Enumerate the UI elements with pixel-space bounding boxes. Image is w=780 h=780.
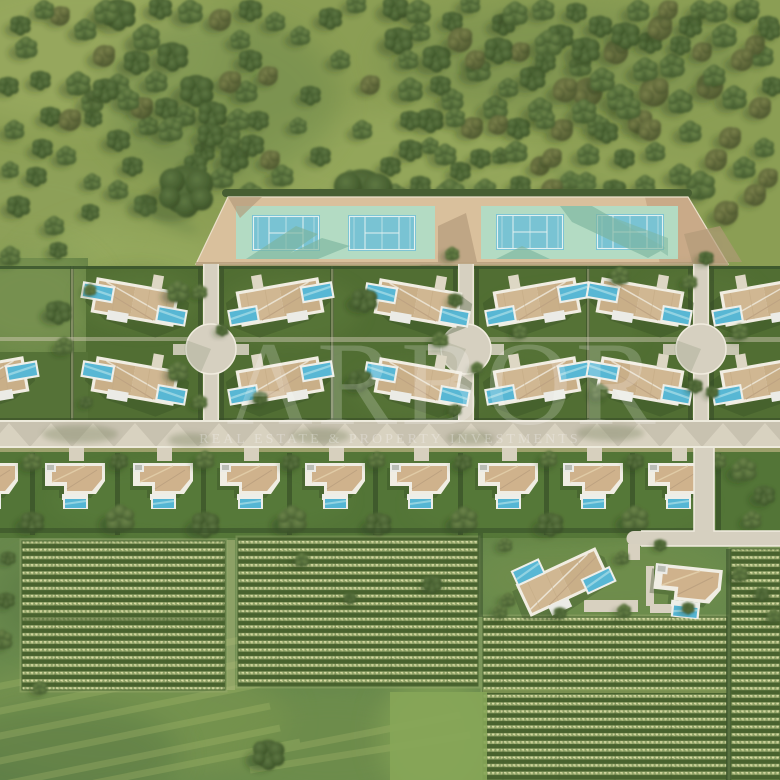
svg-text:ARBOR: ARBOR <box>226 317 659 450</box>
svg-text:REAL ESTATE & PROPERTY INVESTM: REAL ESTATE & PROPERTY INVESTMENTS <box>199 432 581 447</box>
